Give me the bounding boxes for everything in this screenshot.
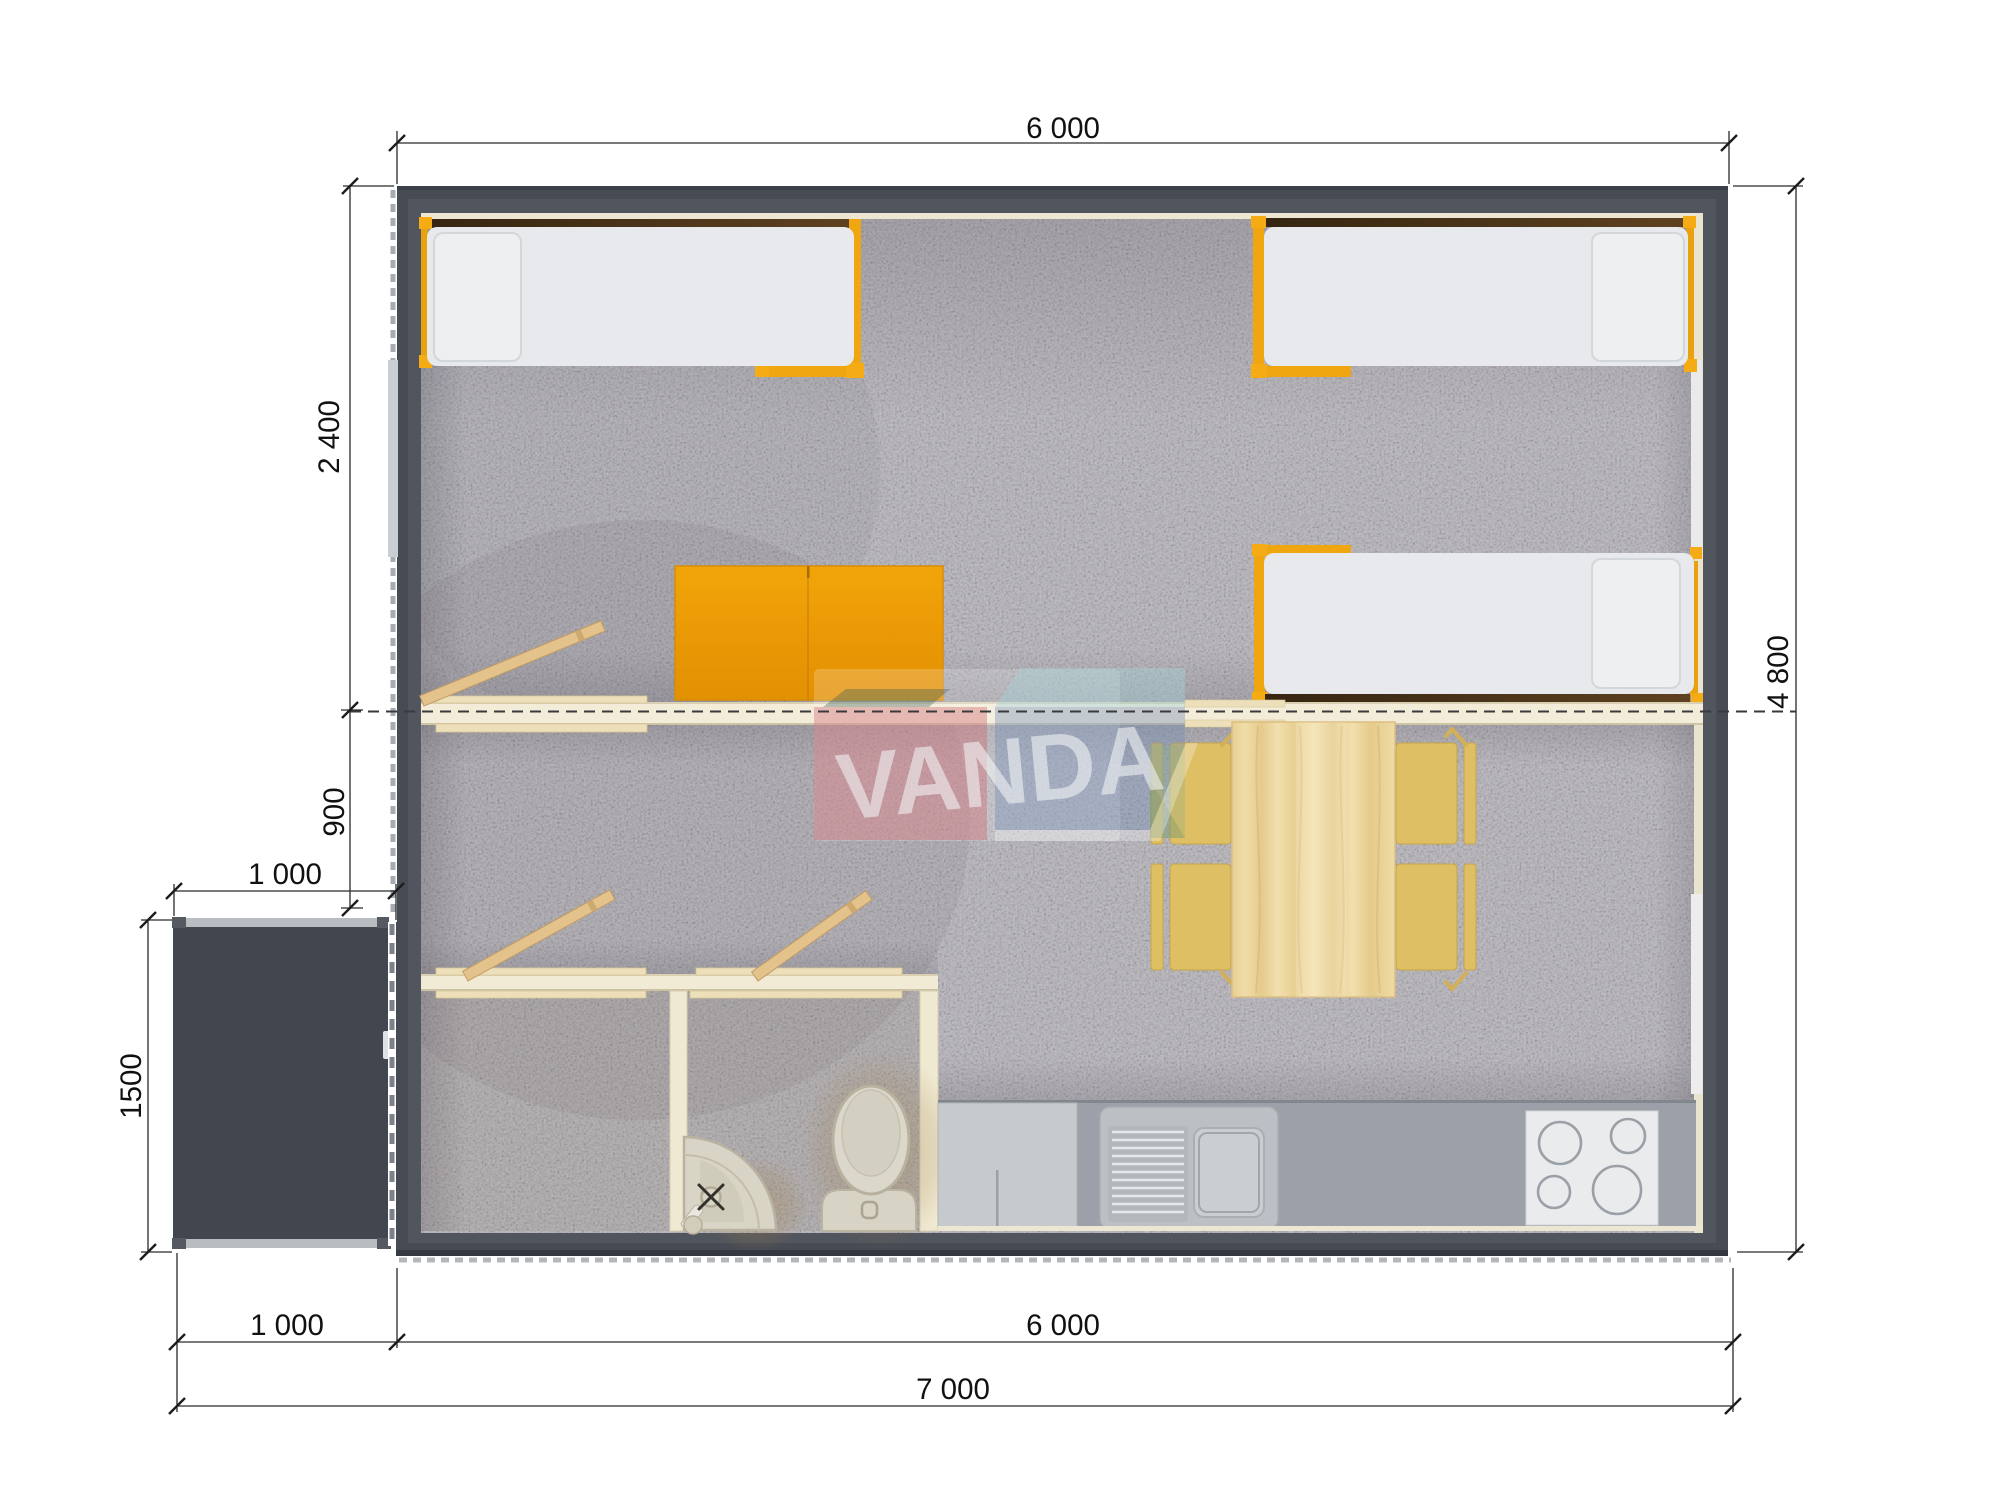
svg-text:900: 900 <box>318 787 351 836</box>
svg-text:1 000: 1 000 <box>248 858 322 891</box>
svg-text:2 400: 2 400 <box>313 400 346 474</box>
svg-text:6 000: 6 000 <box>1026 1309 1100 1342</box>
svg-text:4 800: 4 800 <box>1762 635 1795 709</box>
svg-text:1 000: 1 000 <box>250 1309 324 1342</box>
svg-text:6 000: 6 000 <box>1026 112 1100 145</box>
svg-text:7 000: 7 000 <box>916 1373 990 1406</box>
svg-text:1500: 1500 <box>115 1053 148 1119</box>
